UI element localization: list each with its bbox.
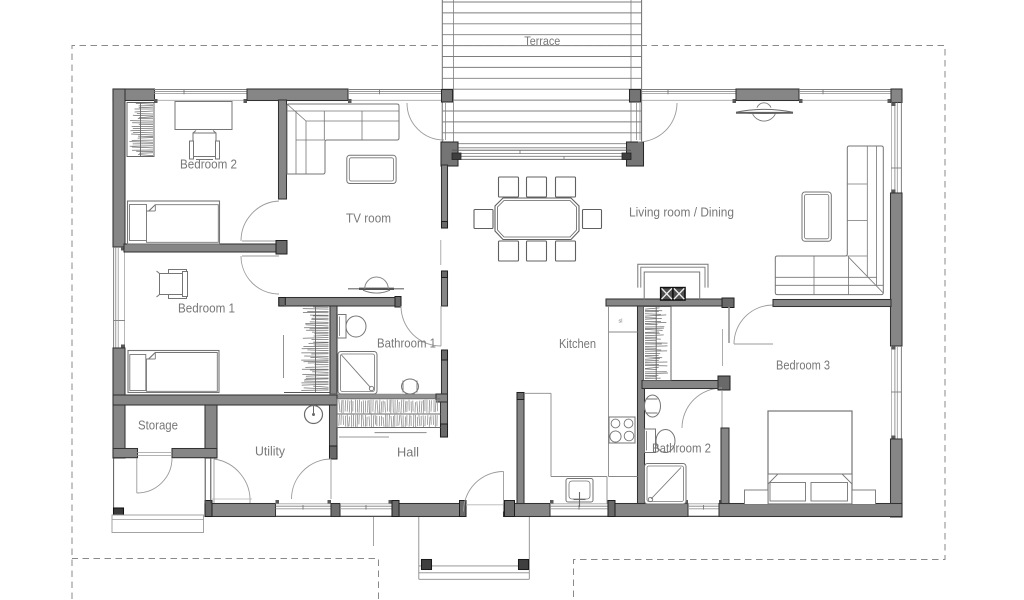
- svg-text:Living room / Dining: Living room / Dining: [629, 206, 734, 220]
- svg-text:Bathroom 1: Bathroom 1: [377, 337, 436, 351]
- svg-text:Kitchen: Kitchen: [559, 337, 596, 351]
- svg-text:Bedroom 3: Bedroom 3: [776, 359, 830, 373]
- svg-text:Hall: Hall: [397, 446, 419, 460]
- svg-text:TV room: TV room: [346, 212, 391, 226]
- svg-text:sl: sl: [619, 319, 623, 325]
- svg-text:Storage: Storage: [138, 419, 178, 433]
- svg-text:Terrace: Terrace: [524, 36, 560, 48]
- svg-text:Bedroom 2: Bedroom 2: [180, 158, 237, 172]
- svg-text:Bathroom 2: Bathroom 2: [652, 442, 711, 456]
- svg-text:Utility: Utility: [255, 445, 286, 459]
- svg-text:Bedroom 1: Bedroom 1: [178, 302, 235, 316]
